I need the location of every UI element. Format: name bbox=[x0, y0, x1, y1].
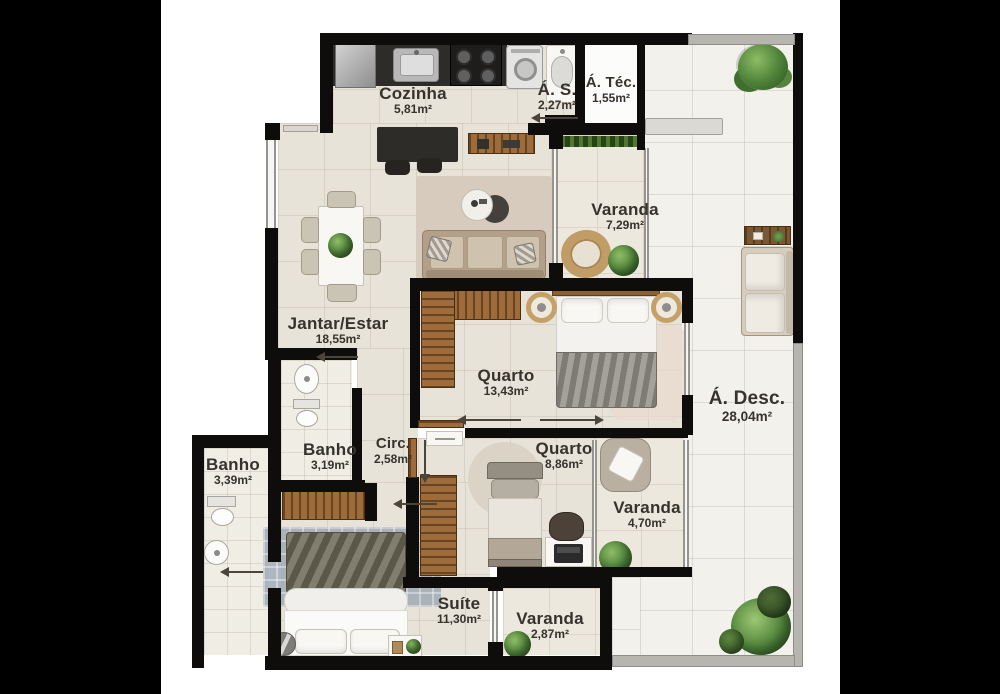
door-arrow bbox=[325, 356, 358, 358]
room-label-quarto-1: Quarto 13,43m² bbox=[478, 366, 535, 398]
wall bbox=[600, 577, 612, 668]
plant bbox=[757, 586, 791, 618]
room-label-area-tecnica: Á. Téc. 1,55m² bbox=[586, 75, 637, 105]
room-label-quarto-2: Quarto 8,86m² bbox=[536, 439, 593, 471]
wall bbox=[365, 483, 377, 521]
letterbox-left bbox=[0, 0, 161, 694]
window bbox=[266, 140, 276, 230]
wardrobe bbox=[282, 489, 365, 520]
wall bbox=[682, 283, 693, 323]
room-label-suite: Suíte 11,30m² bbox=[437, 594, 481, 626]
room-label-varanda-sul: Varanda 2,87m² bbox=[516, 609, 584, 641]
room-label-banho-2: Banho 3,39m² bbox=[206, 455, 260, 487]
outdoor-coffee-table bbox=[744, 226, 791, 245]
wall bbox=[192, 435, 204, 668]
room-label-varanda-norte: Varanda 7,29m² bbox=[591, 200, 659, 232]
toilet-tank bbox=[293, 399, 320, 409]
wall bbox=[793, 33, 803, 343]
bathroom-sink bbox=[294, 364, 319, 394]
room-label-banho-1: Banho 3,19m² bbox=[303, 440, 357, 472]
dining-chair bbox=[301, 217, 319, 243]
outdoor-sofa bbox=[741, 247, 794, 336]
bed-pillow bbox=[607, 298, 649, 323]
wall bbox=[273, 480, 365, 492]
room-label-varanda-leste: Varanda 4,70m² bbox=[613, 498, 681, 530]
nightstand bbox=[388, 635, 422, 658]
bathroom-sink bbox=[204, 540, 229, 565]
glass-door bbox=[592, 440, 597, 567]
wall bbox=[406, 477, 419, 577]
toilet bbox=[296, 410, 318, 427]
wall bbox=[265, 348, 357, 360]
parapet-wall bbox=[793, 343, 803, 667]
toilet bbox=[211, 508, 234, 526]
window bbox=[684, 321, 690, 397]
dining-chair bbox=[301, 249, 319, 275]
room-label-cozinha: Cozinha 5,81m² bbox=[379, 84, 447, 116]
sliding-door-arrow bbox=[466, 419, 521, 421]
single-bed-blanket bbox=[488, 538, 542, 560]
entry-door bbox=[283, 125, 318, 132]
bed-pillow bbox=[491, 479, 539, 499]
sideboard bbox=[468, 133, 535, 154]
wall bbox=[268, 360, 281, 562]
wall bbox=[403, 577, 610, 588]
stove bbox=[450, 44, 502, 86]
nightstand bbox=[651, 292, 682, 323]
armchair bbox=[600, 438, 651, 492]
desk bbox=[545, 537, 592, 567]
wall bbox=[265, 228, 278, 350]
door-arrow bbox=[424, 440, 426, 474]
wall bbox=[497, 567, 692, 577]
kitchen-island bbox=[377, 127, 458, 162]
glass-door bbox=[552, 149, 558, 265]
room-label-circulacao: Circ. 2,58m² bbox=[374, 436, 412, 466]
bar-stool bbox=[417, 158, 442, 173]
wall bbox=[265, 656, 612, 670]
letterbox-right bbox=[840, 0, 1000, 694]
plant bbox=[608, 245, 639, 276]
door-arrow bbox=[229, 571, 263, 573]
kitchen-sink bbox=[393, 48, 439, 82]
wall bbox=[549, 133, 563, 149]
parapet-wall bbox=[688, 34, 795, 45]
dining-chair bbox=[327, 284, 357, 302]
parapet-wall bbox=[612, 655, 795, 667]
bar-stool bbox=[385, 160, 410, 175]
terrace-bench bbox=[645, 118, 723, 135]
desk-chair bbox=[549, 512, 584, 541]
plant bbox=[719, 629, 744, 654]
plant bbox=[738, 44, 788, 90]
wall bbox=[320, 33, 333, 133]
sofa bbox=[422, 230, 546, 280]
bed-pillow bbox=[561, 298, 603, 323]
dining-chair bbox=[327, 191, 356, 208]
single-bed-foot bbox=[488, 559, 542, 567]
wall bbox=[465, 428, 688, 438]
glass-railing bbox=[683, 440, 689, 567]
door-arrow bbox=[402, 503, 437, 505]
nightstand bbox=[526, 292, 557, 323]
glass-door bbox=[492, 591, 498, 643]
door-arrow bbox=[540, 117, 578, 119]
dresser bbox=[426, 431, 463, 446]
wall bbox=[418, 278, 693, 291]
wall bbox=[488, 577, 503, 591]
sliding-door-arrow bbox=[540, 419, 595, 421]
bed-pillow bbox=[295, 629, 347, 654]
wardrobe bbox=[421, 289, 455, 388]
bed-blanket bbox=[556, 352, 657, 408]
table-plant bbox=[328, 233, 353, 258]
wall bbox=[410, 278, 420, 428]
toilet-tank bbox=[207, 496, 236, 507]
wall bbox=[488, 642, 503, 656]
room-label-area-descoberta: Á. Desc. 28,04m² bbox=[709, 388, 786, 424]
room-area-descoberta-floor-strip bbox=[612, 577, 640, 657]
wall bbox=[528, 123, 642, 135]
floor-plan-image: Cozinha 5,81m² Á. S. 2,27m² Á. Téc. 1,55… bbox=[0, 0, 1000, 694]
room-label-area-servico: Á. S. 2,27m² bbox=[538, 80, 577, 112]
sofa-pillow bbox=[513, 242, 537, 266]
planter-hedge bbox=[556, 136, 640, 147]
wall bbox=[265, 123, 280, 140]
room-label-jantar-estar: Jantar/Estar 18,55m² bbox=[288, 314, 389, 346]
coffee-table bbox=[461, 189, 493, 221]
wardrobe bbox=[420, 475, 457, 576]
suite-bed-blanket bbox=[286, 532, 406, 594]
dining-chair bbox=[363, 217, 381, 243]
dining-chair bbox=[363, 249, 381, 275]
fridge bbox=[335, 44, 376, 88]
single-bed bbox=[488, 498, 542, 540]
